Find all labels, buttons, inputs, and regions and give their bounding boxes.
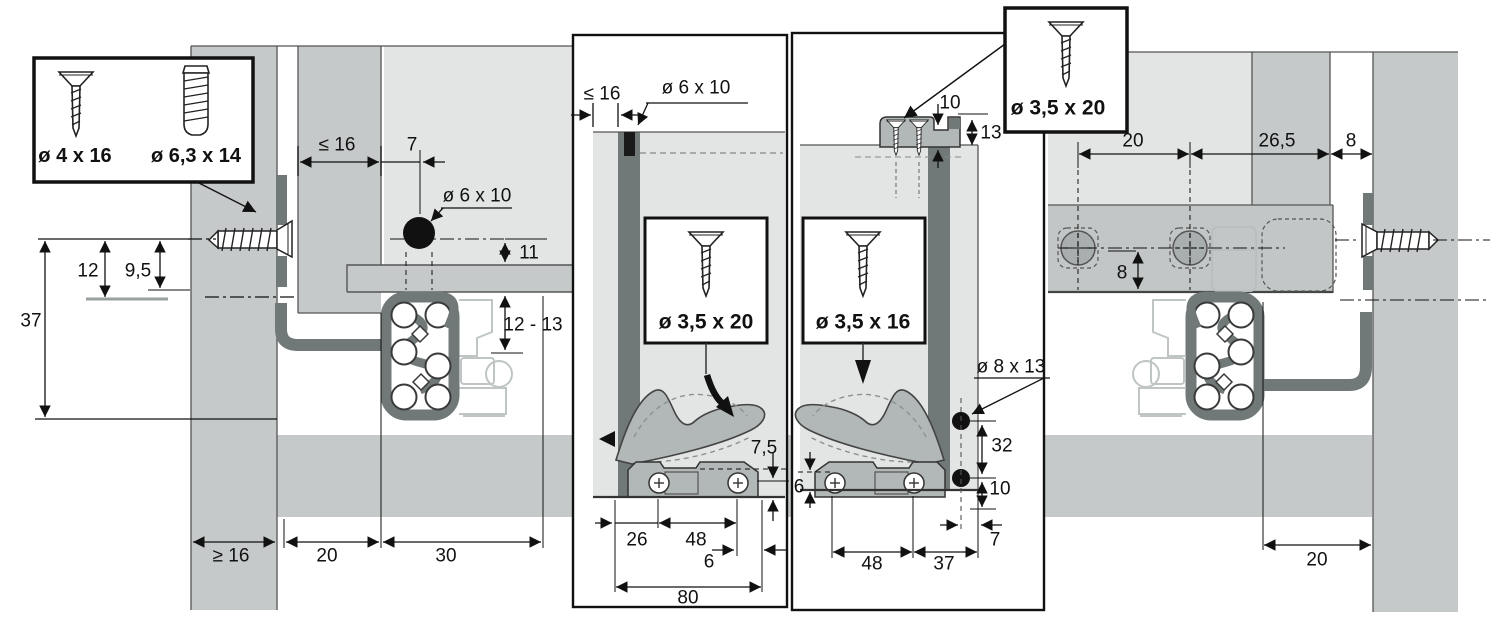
drawer-bottom-bar <box>347 265 572 292</box>
r-dim-8-gap-label: 8 <box>1346 132 1357 151</box>
dim-30-label: 30 <box>435 547 456 566</box>
drawer-side-board-right <box>1252 52 1330 205</box>
p3-screw-top-spec-label: ø 3,5 x 20 <box>1011 98 1106 119</box>
drawer-back-board <box>950 145 978 490</box>
rail-plate-right <box>1363 256 1373 290</box>
cabinet-side-panel-right <box>1373 52 1458 612</box>
back-bracket-tab <box>949 118 960 129</box>
p3-dim-10-label: 10 <box>989 480 1010 499</box>
r-dim-26-5-label: 26,5 <box>1259 132 1296 151</box>
r-dim-8-holes-label: 8 <box>1117 264 1128 283</box>
rail-plate <box>276 256 287 287</box>
p2-screw-spec-label: ø 3,5 x 20 <box>659 312 754 333</box>
p2-dim-7-5-label: 7,5 <box>751 439 777 458</box>
legend-screw-b-label: ø 6,3 x 14 <box>151 146 241 166</box>
dim-7-label: 7 <box>407 136 418 155</box>
p3-dim-13-label: 13 <box>980 124 1001 143</box>
dim-le16-label: ≤ 16 <box>319 136 356 155</box>
p2-dim-le16-label: ≤ 16 <box>584 85 621 104</box>
dim-9-5-label: 9,5 <box>125 262 151 281</box>
technical-drawing: ø 4 x 16 ø 6,3 x 14 12 9,5 37 ≤ 16 7 ø 6… <box>0 0 1500 637</box>
p2-dim-80-label: 80 <box>677 589 698 608</box>
p2-dim-26-label: 26 <box>626 531 647 550</box>
p3-hole-spec-label: ø 8 x 13 <box>977 358 1046 377</box>
dowel-peg <box>624 132 635 156</box>
legend-screw-a-label: ø 4 x 16 <box>38 146 111 166</box>
dim-12-13-label: 12 - 13 <box>503 316 562 335</box>
p3-dim-6-label: 6 <box>794 478 805 497</box>
rail-plate-right <box>1363 193 1373 225</box>
rail-plate <box>276 175 287 225</box>
r-dim-20-bottom-label: 20 <box>1306 551 1327 570</box>
p3-dim-10-top-label: 10 <box>939 94 960 113</box>
p3-dim-32-label: 32 <box>991 437 1012 456</box>
p3-dim-48-label: 48 <box>861 555 882 574</box>
p2-dowel-spec-label: ø 6 x 10 <box>662 79 731 98</box>
dowel-hole-dot <box>403 217 435 249</box>
dim-37-label: 37 <box>20 312 41 331</box>
dim-11-label: 11 <box>519 244 539 263</box>
dim-20-label: 20 <box>316 547 337 566</box>
rail-arm-right <box>1258 312 1366 385</box>
p2-dim-6-label: 6 <box>704 553 715 572</box>
p3-dim-37-label: 37 <box>933 555 954 574</box>
dim-12-label: 12 <box>77 262 98 281</box>
p3-dim-7-label: 7 <box>990 531 1001 550</box>
dowel-spec-label: ø 6 x 10 <box>443 187 512 206</box>
p2-dim-48-label: 48 <box>685 531 706 550</box>
r-dim-20-top-label: 20 <box>1122 132 1143 151</box>
p3-screw-mid-spec-label: ø 3,5 x 16 <box>816 312 911 333</box>
dim-ge16-label: ≥ 16 <box>213 547 250 566</box>
right-section-view <box>1048 52 1458 612</box>
